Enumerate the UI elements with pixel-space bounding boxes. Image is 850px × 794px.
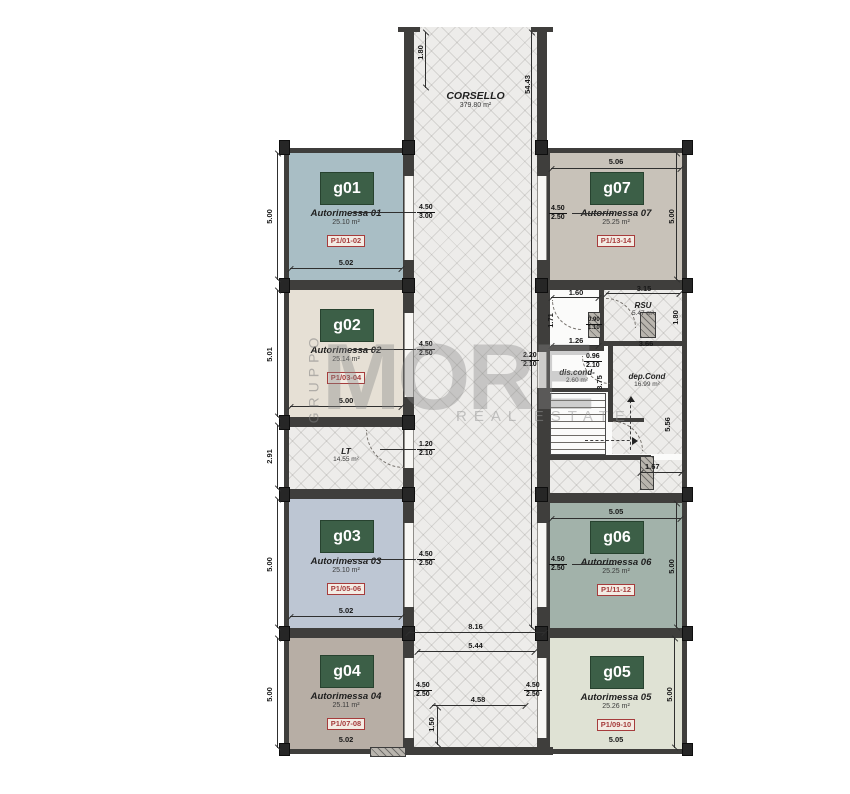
dim-g07-right: 5.00 (667, 209, 676, 224)
dim-line (277, 153, 278, 280)
dim-lobby-width: 1.60 (551, 288, 601, 297)
dim-line (531, 32, 532, 628)
column (402, 415, 415, 430)
dim-g06-door: 4.502.50 (549, 556, 567, 574)
unit-area-g02: 25.14 m² (284, 356, 408, 363)
dim-g01-door: 4.503.00 (417, 204, 435, 222)
floorplan: CORSELLO 379.80 m² (0, 0, 850, 794)
dim-corridor-length: 54.43 (523, 75, 532, 94)
dim-g05-bottom: 5.05 (545, 735, 687, 744)
dim-depcond-right: 5.56 (663, 417, 672, 432)
dim-corridor-door: 2.202.10 (521, 352, 539, 370)
dim-b816: 8.16 (414, 622, 537, 631)
column (279, 140, 290, 155)
dim-discond-door: 0.962.10 (584, 353, 602, 371)
dim-line (551, 518, 681, 519)
unit-tag-g05: P1/09-10 (597, 719, 635, 731)
corridor-area: 379.80 m² (414, 102, 537, 109)
dim-line (425, 32, 426, 88)
badge-g04: g04 (320, 655, 374, 688)
dim-g04-bottom: 5.02 (284, 735, 408, 744)
leader-line (572, 564, 614, 565)
leader-line (352, 559, 416, 560)
unit-name-g04: Autorimessa 04 (284, 691, 408, 702)
dim-line (290, 616, 402, 617)
dim-line (640, 472, 682, 473)
leader-line (380, 449, 416, 450)
dim-line (676, 153, 677, 280)
unit-tag-g03: P1/05-06 (327, 583, 365, 595)
unit-tag-g02: P1/03-04 (327, 372, 365, 384)
column (682, 743, 693, 756)
dim-g03-door: 4.502.50 (417, 551, 435, 569)
dim-line (551, 297, 599, 298)
stairs-arrow-up-icon (627, 396, 635, 402)
badge-g03: g03 (320, 520, 374, 553)
column (279, 278, 290, 293)
corridor-top-stub-left (398, 27, 420, 32)
corridor-bottom-wall (398, 747, 553, 755)
corridor-top-stub-right (531, 27, 553, 32)
dim-lobby-height: 1.71 (546, 313, 555, 328)
dim-line (674, 638, 675, 748)
leader-line (572, 213, 614, 214)
dim-line (551, 345, 599, 346)
unit-area-g04: 25.11 m² (284, 702, 408, 709)
column (402, 278, 415, 293)
dim-g02-left: 5.01 (265, 347, 274, 362)
unit-name-g01: Autorimessa 01 (284, 208, 408, 219)
label-g03: Autorimessa 03 25.10 m² P1/05-06 (284, 556, 408, 596)
stairs (550, 393, 606, 455)
dim-line (437, 707, 438, 745)
dim-b544: 5.44 (414, 641, 537, 650)
dim-line (290, 406, 402, 407)
column (279, 487, 290, 502)
dim-line (277, 425, 278, 489)
unit-name-g03: Autorimessa 03 (284, 556, 408, 567)
leader-line (352, 349, 416, 350)
dim-b458: 4.58 (428, 695, 528, 704)
leader-line (352, 212, 416, 213)
badge-g02: g02 (320, 309, 374, 342)
dim-s126: 1.26 (551, 336, 601, 345)
unit-area-g05: 25.26 m² (545, 703, 687, 710)
dim-line (676, 503, 677, 628)
room-name-depcond: dep.Cond (612, 372, 682, 381)
dim-line (277, 638, 278, 748)
dim-line (417, 651, 535, 652)
unit-tag-g06: P1/11-12 (597, 584, 635, 596)
dim-g06-top: 5.05 (545, 507, 687, 516)
column (682, 626, 693, 641)
label-depcond: dep.Cond 16.99 m² (612, 372, 682, 388)
dim-line (606, 293, 680, 294)
dim-g03-left: 5.00 (265, 557, 274, 572)
dim-g01-left: 5.00 (265, 209, 274, 224)
column (535, 140, 548, 155)
unit-name-g02: Autorimessa 02 (284, 345, 408, 356)
unit-tag-g01: P1/01-02 (327, 235, 365, 247)
dim-line (432, 705, 526, 706)
dim-s167: 1.67 (645, 462, 660, 471)
unit-tag-g07: P1/13-14 (597, 235, 635, 247)
column (535, 487, 548, 502)
unit-area-g01: 25.10 m² (284, 219, 408, 226)
column (682, 487, 693, 502)
dim-g05-right: 5.00 (665, 687, 674, 702)
dim-g03-bottom: 5.02 (284, 606, 408, 615)
service-passage-floor (550, 460, 682, 493)
wall-stairs-bottom (549, 455, 651, 460)
dim-lt-left: 2.91 (265, 449, 274, 464)
badge-g06: g06 (590, 521, 644, 554)
dim-g02-bottom: 5.00 (284, 396, 408, 405)
badge-g07: g07 (590, 172, 644, 205)
dim-g04-left: 5.00 (265, 687, 274, 702)
column (682, 140, 693, 155)
column (535, 278, 548, 293)
dim-corridor-entry: 1.80 (416, 45, 425, 60)
dim-g01-bottom: 5.02 (284, 258, 408, 267)
dim-s375: 3.75 (595, 375, 604, 390)
room-area-depcond: 16.99 m² (612, 381, 682, 388)
corridor-label: CORSELLO 379.80 m² (414, 90, 537, 109)
column (402, 140, 415, 155)
dim-g07-door: 4.502.50 (549, 205, 567, 223)
unit-area-g03: 25.10 m² (284, 567, 408, 574)
room-area-lt: 14.55 m² (284, 456, 408, 463)
dim-line (290, 268, 402, 269)
dim-line (277, 499, 278, 628)
dim-rsu-width: 3.15 (612, 284, 676, 293)
label-g02: Autorimessa 02 25.14 m² P1/03-04 (284, 345, 408, 385)
dim-b150: 1.50 (427, 717, 436, 732)
corridor-name: CORSELLO (414, 90, 537, 102)
dim-line (277, 290, 278, 417)
dim-g07-top: 5.06 (545, 157, 687, 166)
room-name-lt: LT (284, 446, 408, 456)
dim-line (408, 632, 545, 633)
column (279, 626, 290, 641)
pilaster (370, 747, 406, 757)
dim-g02-door: 4.502.50 (417, 341, 435, 359)
dim-s366: 3.66 (614, 339, 678, 348)
dim-shaft: 0.901.10 (586, 317, 602, 332)
dim-line (551, 168, 681, 169)
dim-g06-right: 5.00 (667, 559, 676, 574)
label-g01: Autorimessa 01 25.10 m² P1/01-02 (284, 208, 408, 248)
unit-tag-g04: P1/07-08 (327, 718, 365, 730)
label-g04: Autorimessa 04 25.11 m² P1/07-08 (284, 691, 408, 731)
dim-lt-door: 1.202.10 (417, 441, 435, 459)
column (682, 278, 693, 293)
corridor-wall-right (537, 27, 547, 754)
badge-g05: g05 (590, 656, 644, 689)
badge-g01: g01 (320, 172, 374, 205)
dim-rsu-height: 1.80 (671, 310, 680, 325)
column (402, 487, 415, 502)
room-name-rsu: RSU (604, 301, 682, 310)
